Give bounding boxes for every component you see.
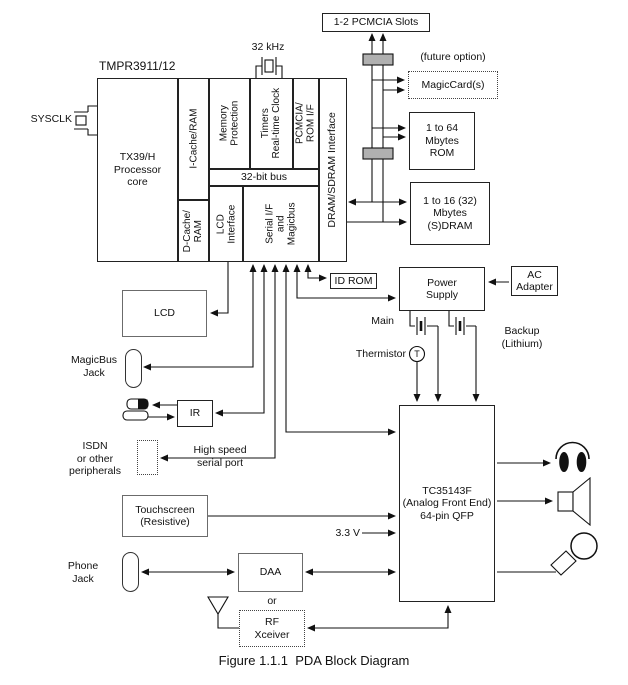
backup-battery-label: Backup (Lithium) <box>498 325 546 350</box>
block-lcd-if: LCD Interface <box>209 186 243 262</box>
block-power-supply: Power Supply <box>399 267 485 311</box>
main-battery-label: Main <box>360 315 394 328</box>
block-lcd: LCD <box>122 290 207 337</box>
block-tc35143f: TC35143F (Analog Front End) 64-pin QFP <box>399 405 495 602</box>
speaker-icon <box>558 478 590 525</box>
xtal-32khz-label: 32 kHz <box>246 41 290 54</box>
isdn-peripheral-shape <box>137 440 158 475</box>
magicbus-jack-shape <box>125 349 142 388</box>
crystal-icon <box>256 57 282 78</box>
or-label: or <box>258 595 286 608</box>
block-ir: IR <box>177 400 213 427</box>
block-magiccard: MagicCard(s) <box>408 71 498 99</box>
crystal-icon <box>74 106 97 135</box>
block-tx39-core: TX39/H Processor core <box>97 78 178 262</box>
block-pcmcia-rom-if: PCMCIA/ ROM I/F <box>293 78 319 169</box>
magicbus-jack-label: MagicBus Jack <box>66 354 122 379</box>
isdn-label: ISDN or other peripherals <box>60 440 130 478</box>
block-32bit-bus: 32-bit bus <box>209 169 319 186</box>
block-dram-sdram-if: DRAM/SDRAM Interface <box>319 78 347 262</box>
block-touchscreen: Touchscreen (Resistive) <box>122 495 208 537</box>
block-dcache: D-Cache/ RAM <box>178 200 209 262</box>
future-option-label: (future option) <box>408 51 498 64</box>
block-id-rom: ID ROM <box>330 273 377 289</box>
v33-label: 3.3 V <box>326 527 360 540</box>
block-pcmcia-slots: 1-2 PCMCIA Slots <box>322 13 430 32</box>
antenna-icon <box>208 597 240 628</box>
block-memory-protection: Memory Protection <box>209 78 250 169</box>
connector-icon <box>363 54 393 159</box>
phone-jack-label: Phone Jack <box>56 560 110 585</box>
thermistor-label: Thermistor <box>348 348 406 361</box>
figure-caption: Figure 1.1.1 PDA Block Diagram <box>0 653 628 669</box>
block-serial-if-magicbus: Serial I/F and Magicbus <box>243 186 319 262</box>
block-sdram: 1 to 16 (32) Mbytes (S)DRAM <box>410 182 490 245</box>
block-daa: DAA <box>238 553 303 592</box>
sysclk-label: SYSCLK <box>18 113 72 126</box>
headphone-icon <box>556 443 589 473</box>
block-icache: I-Cache/RAM <box>178 78 209 200</box>
block-rf-xceiver: RF Xceiver <box>239 610 305 647</box>
chip-title: TMPR3911/12 <box>99 59 175 73</box>
pda-block-diagram: TMPR3911/12 TX39/H Processor core I-Cach… <box>0 0 628 685</box>
processor-block: TX39/H Processor core I-Cache/RAM D-Cach… <box>97 78 347 262</box>
phone-jack-shape <box>122 552 139 592</box>
ir-transceiver-icon <box>123 399 148 420</box>
microphone-icon <box>551 533 597 575</box>
block-ac-adapter: AC Adapter <box>511 266 558 296</box>
block-timers-rtc: Timers Real-time Clock <box>250 78 293 169</box>
thermistor-t-label: T <box>412 349 422 360</box>
block-rom: 1 to 64 Mbytes ROM <box>409 112 475 170</box>
high-speed-serial-label: High speed serial port <box>188 444 252 469</box>
